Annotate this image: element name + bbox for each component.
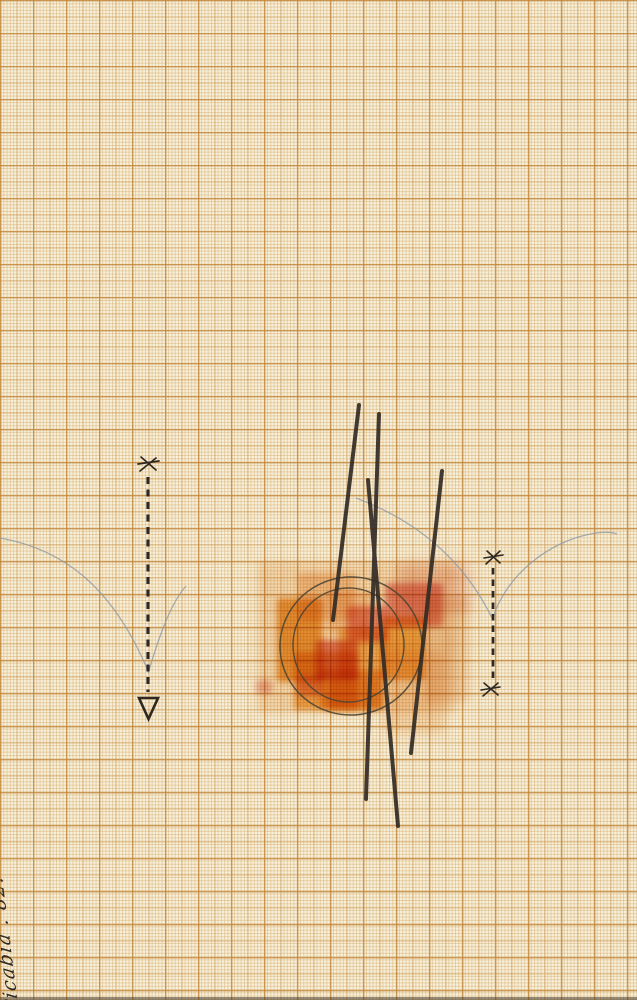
artwork-canvas: Picabia . 82. bbox=[0, 0, 637, 1000]
charcoal-line-4 bbox=[411, 471, 442, 753]
right-dashed-segment bbox=[481, 551, 503, 696]
x-mark-right-bottom bbox=[481, 683, 500, 696]
x-mark-right-top bbox=[484, 551, 503, 564]
right-cusp-curve bbox=[356, 498, 617, 619]
inner-circle bbox=[290, 585, 407, 705]
arrow-triangle-head bbox=[139, 698, 158, 719]
drawing-layer bbox=[0, 0, 637, 1000]
left-dashed-arrow bbox=[138, 457, 159, 719]
left-cusp-curve bbox=[0, 538, 186, 672]
x-mark-left-top bbox=[138, 457, 159, 471]
